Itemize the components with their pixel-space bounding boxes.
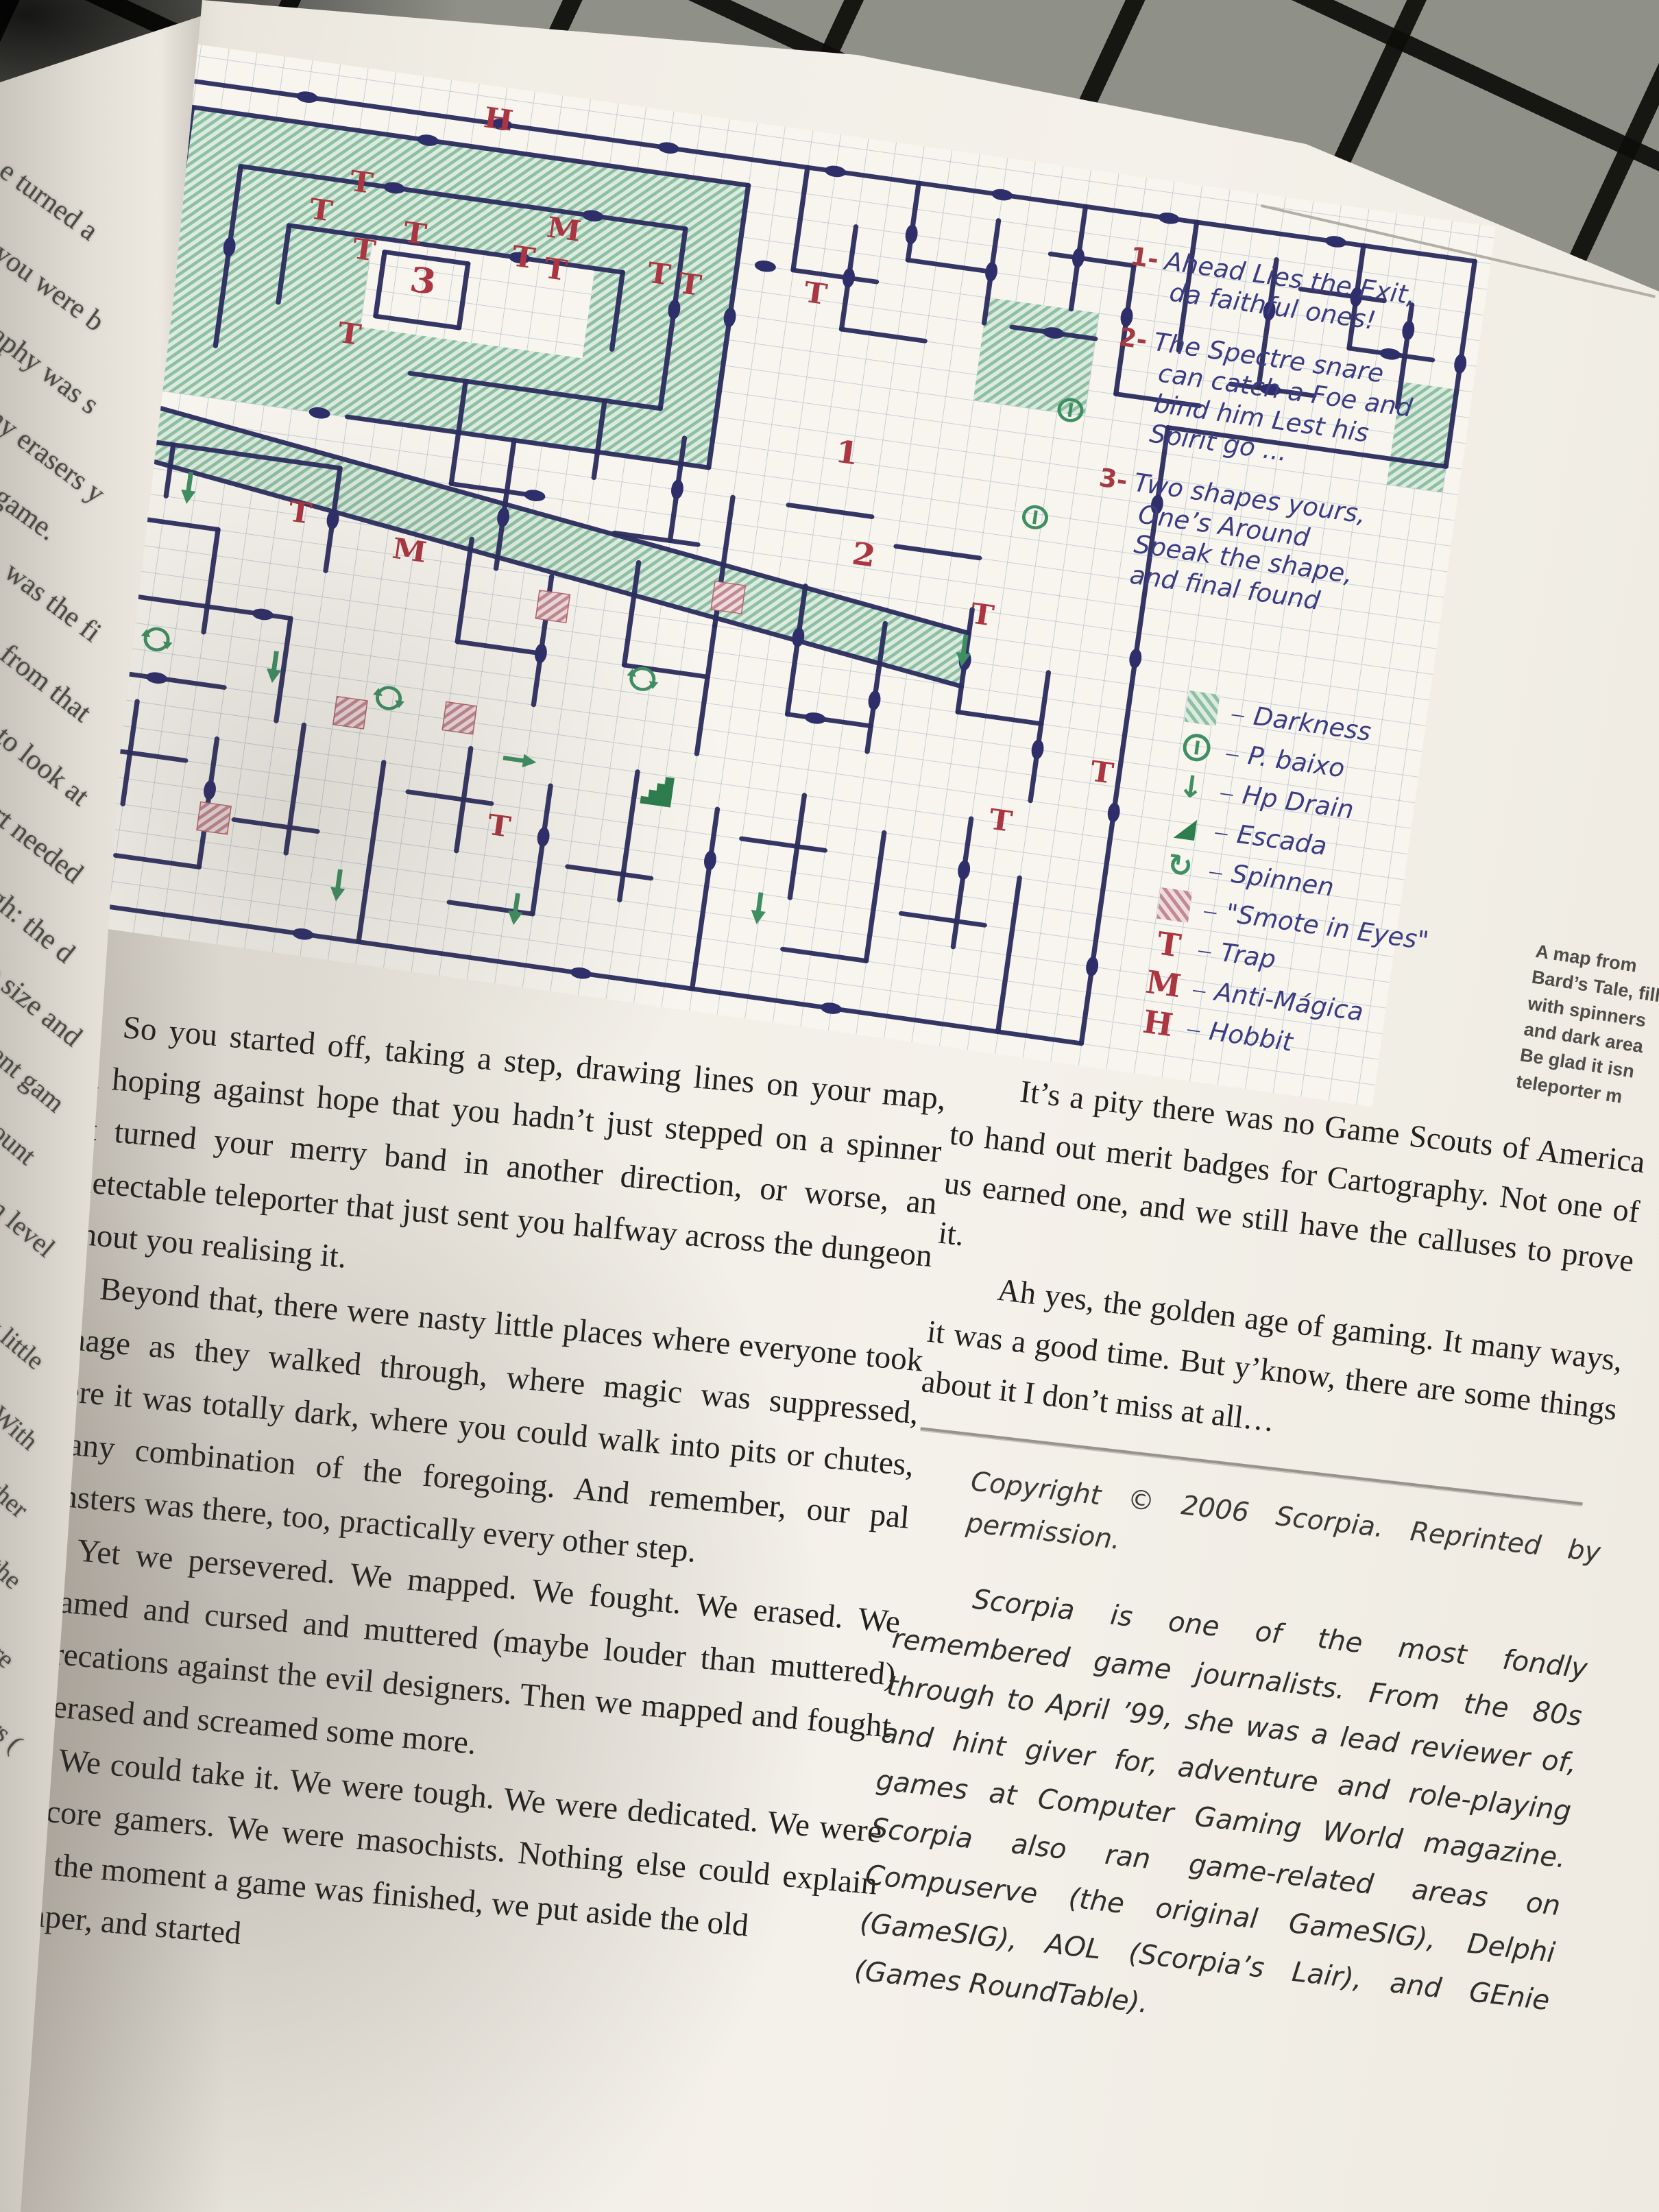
darkness-area-patch (973, 298, 1099, 416)
svg-text:T: T (401, 215, 428, 252)
note-number: 1- (1128, 241, 1161, 274)
svg-text:T: T (350, 232, 378, 268)
left-text-column: So you started off, taking a step, drawi… (0, 996, 948, 2015)
previous-page-text-fragment: gh: the d (0, 881, 81, 970)
legend-symbol-cell: M (1141, 963, 1187, 1005)
previous-page-text-fragment: count (0, 1107, 43, 1171)
previous-page-text-fragment: ters ( (0, 1700, 28, 1758)
green-stairs-icon: ◢ (1173, 809, 1198, 844)
previous-page-text-fragment: e size and (0, 957, 88, 1054)
previous-page-text-fragment: t the (0, 1543, 27, 1596)
previous-page-text-fragment: y little (0, 1310, 50, 1376)
svg-text:T: T (287, 494, 314, 531)
previous-page-text-fragment: from that (0, 638, 97, 729)
svg-text:T: T (645, 256, 673, 292)
svg-text:T: T (969, 597, 996, 633)
legend-symbol-cell (1152, 887, 1197, 924)
author-bio: Scorpia is one of the most fondly rememb… (852, 1567, 1590, 2073)
legend-symbol-cell: H (1135, 1002, 1181, 1044)
legend-dash: – (1202, 895, 1219, 925)
svg-text:M: M (545, 211, 583, 248)
svg-text:T: T (336, 316, 363, 352)
legend-dash: – (1213, 817, 1230, 847)
legend-symbol-cell: ◢ (1163, 808, 1208, 845)
previous-page-text-fragment: e turned a (0, 154, 104, 248)
svg-text:T: T (1088, 754, 1115, 791)
legend-dash: – (1197, 935, 1213, 965)
svg-text:T: T (987, 802, 1015, 839)
legend-dash: – (1191, 974, 1208, 1004)
svg-text:T: T (510, 239, 537, 276)
red-letter-M-icon: M (1143, 963, 1183, 1005)
legend-dash: – (1224, 738, 1241, 768)
previous-page-text-fragment: game. (0, 480, 63, 547)
map-riddle-notes: 1-Ahead Lies the Exit,da faithful ones!2… (1082, 241, 1527, 659)
red-letter-H-icon: H (1141, 1003, 1176, 1044)
svg-text:T: T (307, 192, 335, 228)
green-spinner-arrows-icon: ↻ (1165, 847, 1196, 885)
green-circle-marker-icon (1181, 732, 1212, 763)
previous-page-text-fragment: lore (0, 1625, 21, 1674)
previous-page-text-fragment: on level (0, 1183, 62, 1264)
previous-page-text-fragment: to look at (0, 720, 95, 813)
legend-dash: – (1208, 856, 1224, 886)
green-hatch-square-icon (1185, 690, 1220, 726)
legend-dash: – (1230, 698, 1246, 728)
legend-symbol-cell: T (1146, 924, 1192, 966)
previous-page-text-fragment: rt needed (0, 799, 89, 890)
previous-page-text-fragment: . With (0, 1392, 44, 1456)
riddle-note: 3-Two shapes yours,One’s AroundSpeak the… (1085, 463, 1495, 639)
figure-caption: A map fromBard’s Tale, fillwith spinners… (1514, 938, 1659, 1114)
svg-text:T: T (348, 164, 375, 200)
legend-dash: – (1186, 1013, 1202, 1044)
legend-label: Hobbit (1207, 1016, 1294, 1057)
legend-symbol-cell: ↓ (1168, 767, 1214, 807)
previous-page-text-fragment: wher (0, 1467, 34, 1524)
svg-text:T: T (676, 267, 703, 303)
legend-dash: – (1219, 777, 1235, 807)
map-legend: –Darkness–P. baixo↓–Hp Drain◢–Escada↻–Sp… (1135, 686, 1459, 1079)
right-text-column: It’s a pity there was no Game Scouts of … (852, 1059, 1648, 2073)
note-number: 3- (1098, 463, 1130, 496)
red-hatch-square-icon (1157, 887, 1192, 923)
svg-text:T: T (542, 251, 570, 287)
previous-page-text-fragment: you were b (0, 237, 110, 339)
svg-text:T: T (485, 808, 513, 844)
book-page: TTTTTTHMTTTTT312TMTTTT 1-Ahead Lies the … (0, 0, 1659, 2212)
legend-symbol-cell (1180, 690, 1225, 727)
note-number: 2- (1117, 322, 1149, 355)
green-down-arrow-icon: ↓ (1176, 768, 1207, 806)
svg-text:M: M (390, 531, 428, 569)
legend-label: Trap (1219, 937, 1278, 974)
svg-text:2: 2 (850, 536, 878, 575)
svg-text:T: T (802, 276, 829, 312)
svg-text:3: 3 (407, 260, 439, 303)
svg-text:H: H (482, 101, 516, 138)
legend-symbol-cell (1174, 731, 1219, 764)
svg-text:1: 1 (833, 433, 861, 472)
legend-label: Escada (1235, 819, 1329, 861)
previous-page-text-fragment: was the fi (0, 555, 107, 649)
red-letter-T-icon: T (1155, 924, 1183, 964)
legend-symbol-cell: ↻ (1157, 845, 1203, 886)
